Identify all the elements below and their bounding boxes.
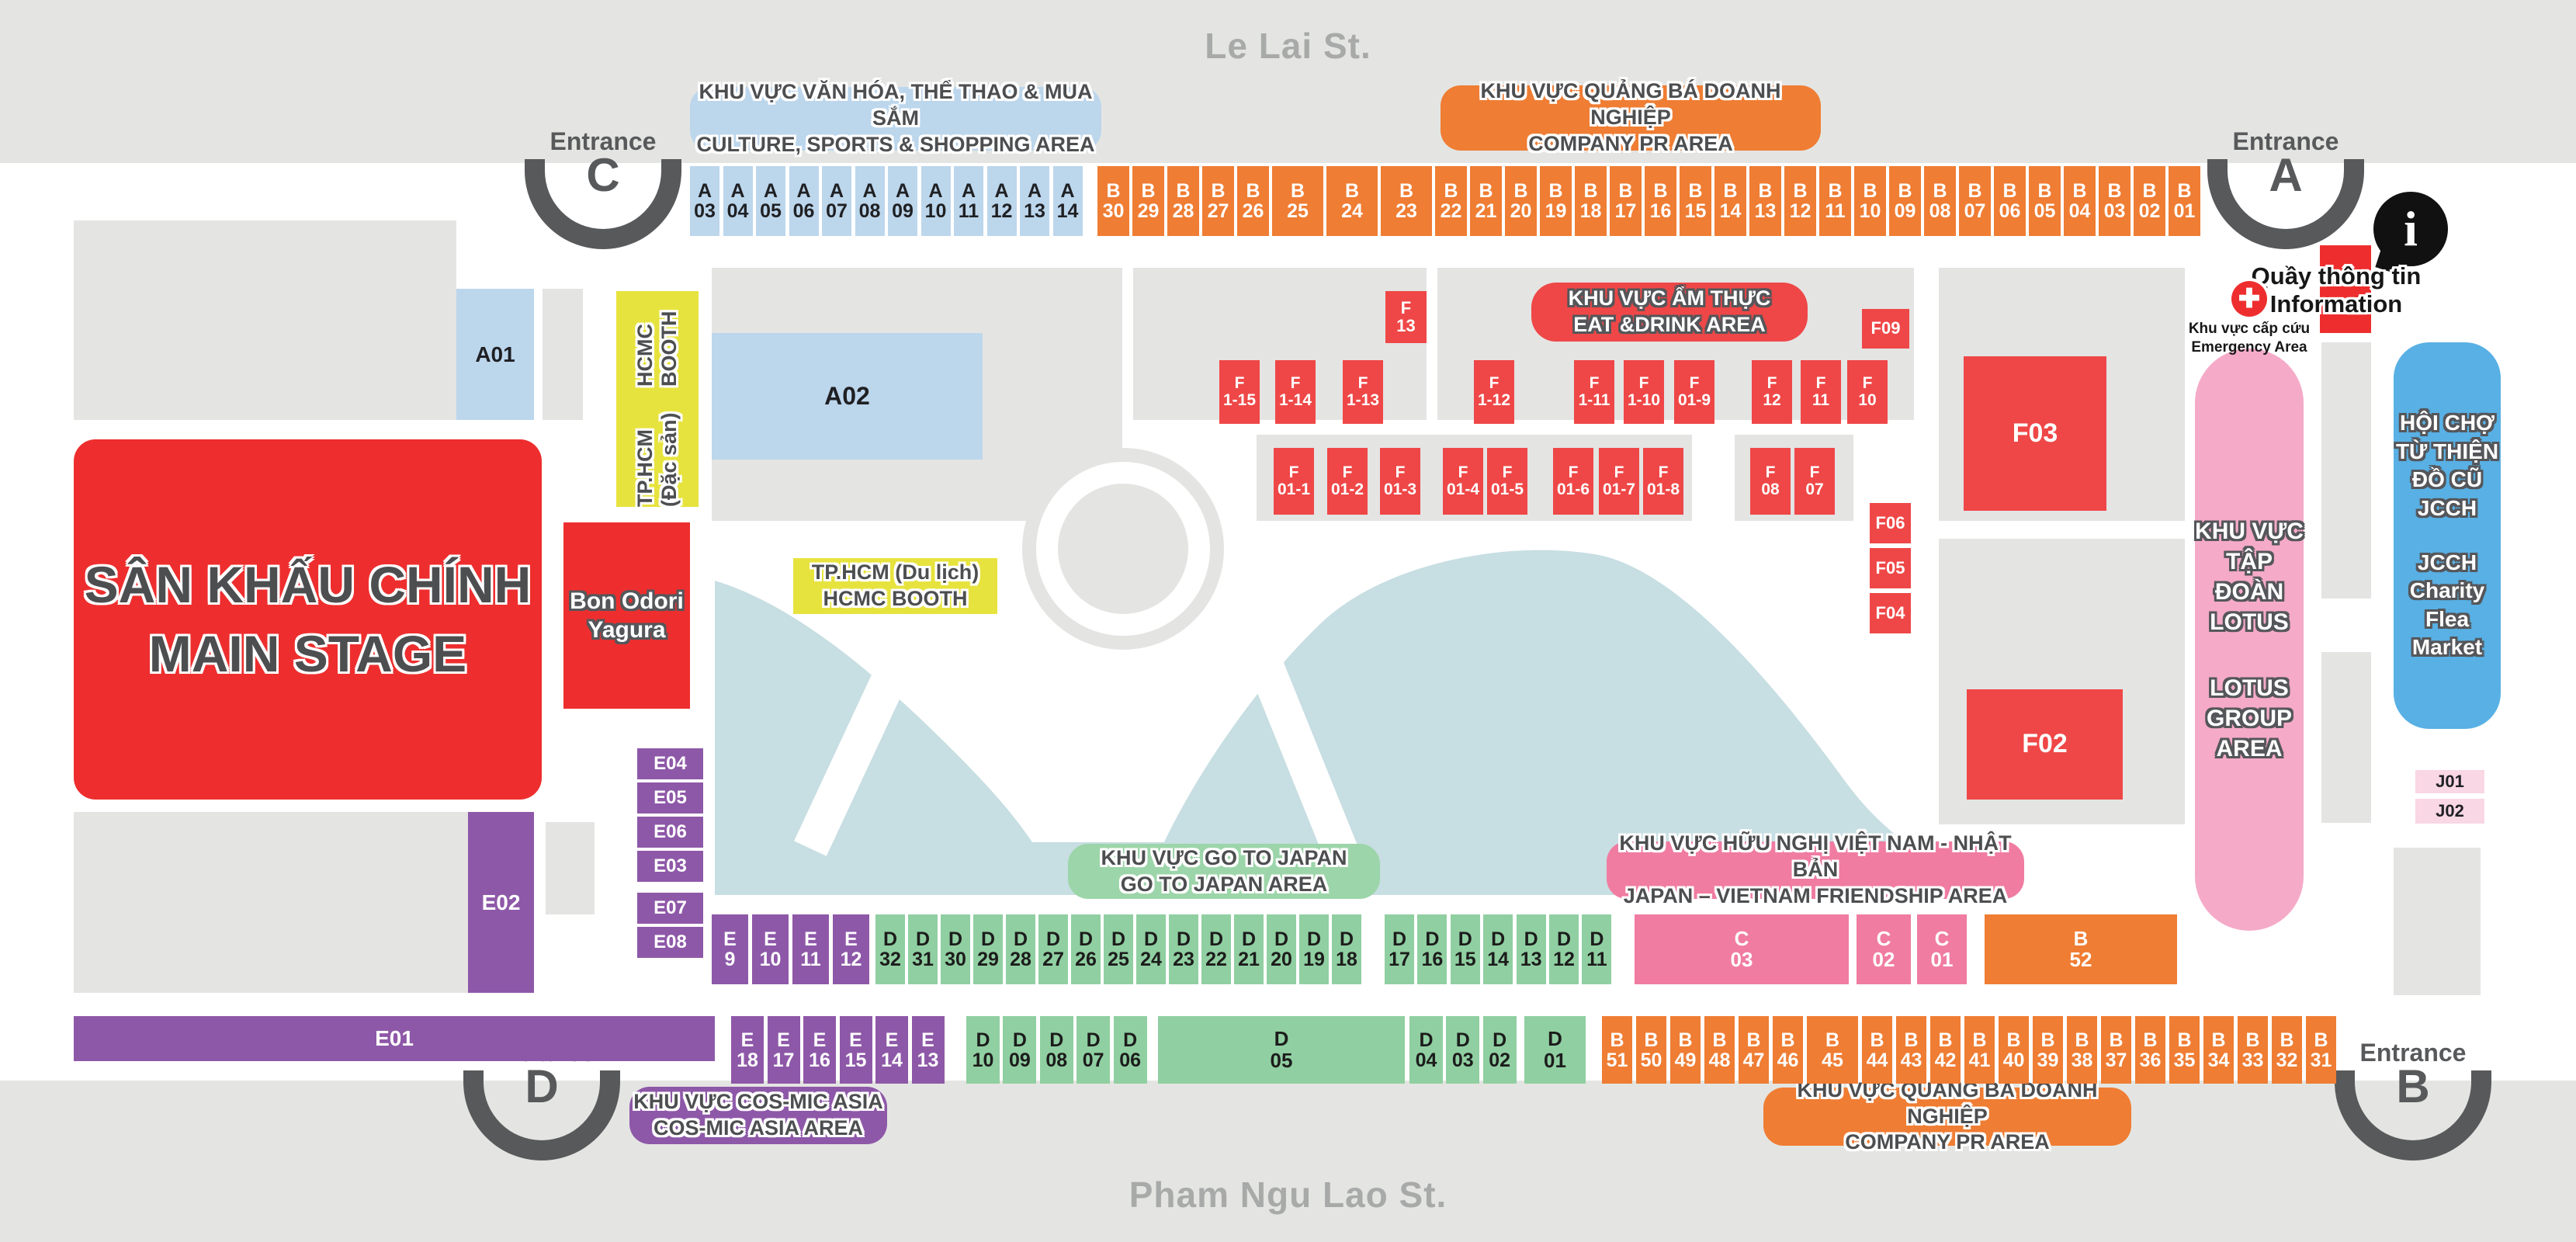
festival-map: Le Lai St. Pham Ngu Lao St. Entrance C E…: [0, 0, 2576, 1242]
booth-d-09: D09: [1003, 1016, 1036, 1084]
booth-f03-label: F03: [2013, 420, 2058, 447]
booth-d-18: D18: [1332, 914, 1361, 984]
booth-a-10: A10: [921, 166, 951, 236]
booth-j02-label: J02: [2436, 803, 2464, 820]
booth-b-11: B11: [1819, 166, 1851, 236]
bon-odori-l1: Bon Odori: [570, 587, 684, 616]
main-stage: SÂN KHẤU CHÍNH MAIN STAGE: [74, 439, 542, 800]
booth-d-17: D17: [1385, 914, 1414, 984]
booth-b-03: B03: [2099, 166, 2130, 236]
booth-b-12: B12: [1784, 166, 1816, 236]
booth-f05-label: F05: [1876, 560, 1905, 578]
label-eat-drink-area: KHU VỰC ẨM THỰC EAT &DRINK AREA: [1531, 283, 1808, 342]
booth-d-23: D23: [1169, 914, 1198, 984]
booth-f02-label: F02: [2022, 730, 2068, 758]
booth-f-11: F11: [1801, 360, 1841, 424]
booth-b-10: B10: [1854, 166, 1886, 236]
booth-e-18: E18: [731, 1016, 764, 1084]
information-icon: i: [2373, 192, 2448, 266]
booth-f-1-15: F1-15: [1219, 360, 1260, 424]
booth-d05: D 05: [1158, 1016, 1405, 1084]
label-pr-area-bottom: KHU VỰC QUẢNG BÁ DOANH NGHIỆP COMPANY PR…: [1763, 1088, 2131, 1146]
booth-d-04: D04: [1409, 1016, 1443, 1084]
booth-d-02: D02: [1483, 1016, 1517, 1084]
booth-b-16: B16: [1645, 166, 1676, 236]
booth-f-10: F10: [1847, 360, 1888, 424]
booth-f04-label: F04: [1876, 605, 1905, 623]
hcmc-dacsan-l1: TP.HCM (Đặc sản): [633, 390, 681, 507]
booth-f-01-6: F01-6: [1553, 448, 1593, 515]
hcmc-dulich-l2: HCMC BOOTH: [823, 586, 968, 612]
booth-f09-label: F09: [1871, 320, 1901, 338]
booth-f-01-3: F01-3: [1380, 448, 1420, 515]
booth-e-11: E11: [792, 914, 829, 984]
booth-b-01: B01: [2169, 166, 2200, 236]
booth-d-11: D11: [1582, 914, 1611, 984]
booth-d-19: D19: [1299, 914, 1329, 984]
jcch-l7: Flea: [2425, 605, 2469, 633]
booth-b-29: B29: [1132, 166, 1164, 236]
booth-d-22: D22: [1201, 914, 1231, 984]
booth-a-13: A13: [1020, 166, 1049, 236]
booth-f-1-10: F1-10: [1624, 360, 1664, 424]
booth-d-32: D32: [875, 914, 905, 984]
booth-f05: F05: [1870, 548, 1911, 588]
booth-b-17: B17: [1610, 166, 1642, 236]
booth-e06: E06: [637, 817, 703, 848]
lotus-l6: AREA: [2216, 734, 2282, 764]
booth-f-08: F08: [1750, 448, 1791, 515]
booth-b52-number: 52: [2070, 949, 2092, 970]
booth-b52: B 52: [1985, 914, 2177, 984]
booth-j01-label: J01: [2436, 773, 2464, 791]
booth-e03: E03: [637, 851, 703, 882]
booth-d-15: D15: [1451, 914, 1480, 984]
booth-f-01-1: F01-1: [1274, 448, 1314, 515]
booth-b-23: B23: [1381, 166, 1432, 236]
booth-e-14: E14: [875, 1016, 908, 1084]
label-culture-l1: KHU VỰC VĂN HÓA, THỂ THAO & MUA SẮM: [690, 79, 1101, 132]
booth-f-01-8: F01-8: [1643, 448, 1683, 515]
booth-d-28: D28: [1006, 914, 1035, 984]
booth-b-34: B34: [2203, 1016, 2234, 1084]
booth-b-50: B50: [1636, 1016, 1666, 1084]
booth-d05-number: 05: [1271, 1050, 1293, 1071]
bon-odori-l2: Yagura: [588, 616, 665, 645]
lotus-group-area: KHU VỰC TẬP ĐOÀN LOTUS LOTUS GROUP AREA: [2195, 349, 2304, 931]
roundabout-center: [1058, 484, 1188, 614]
label-friendship-l1: KHU VỰC HỮU NGHỊ VIỆT NAM - NHẬT BẢN: [1607, 831, 2024, 883]
booth-b-39: B39: [2033, 1016, 2063, 1084]
booth-b-13: B13: [1749, 166, 1781, 236]
booth-d-07: D07: [1077, 1016, 1110, 1084]
entrance-c-letter: C: [545, 148, 661, 202]
label-pr-top-l1: KHU VỰC QUẢNG BÁ DOANH NGHIỆP: [1441, 78, 1821, 131]
booth-b-30: B30: [1097, 166, 1129, 236]
booth-a01: A01: [456, 289, 534, 420]
booth-j01: J01: [2415, 770, 2484, 793]
booth-e-16: E16: [803, 1016, 836, 1084]
booth-b-06: B06: [1994, 166, 2026, 236]
booth-b-05: B05: [2029, 166, 2061, 236]
booth-d-24: D24: [1136, 914, 1166, 984]
booth-d-03: D03: [1446, 1016, 1479, 1084]
booth-e02: E02: [468, 812, 534, 993]
booth-c01: C 01: [1917, 914, 1967, 984]
booth-b-45: B45: [1807, 1016, 1858, 1084]
booth-f-01-5: F01-5: [1487, 448, 1527, 515]
hcmc-booth-dacsan: TP.HCM (Đặc sản) HCMC BOOTH: [616, 291, 699, 507]
booth-f02: F02: [1967, 689, 2123, 800]
booth-e-17: E17: [768, 1016, 800, 1084]
label-friendship-area: KHU VỰC HỮU NGHỊ VIỆT NAM - NHẬT BẢN JAP…: [1607, 841, 2024, 899]
label-cosmic-l1: KHU VỰC COS-MIC ASIA: [633, 1089, 882, 1115]
booth-a-14: A14: [1053, 166, 1083, 236]
booth-b-35: B35: [2169, 1016, 2200, 1084]
booth-c03-number: 03: [1731, 949, 1753, 970]
booth-b-28: B28: [1167, 166, 1199, 236]
booth-d-06: D06: [1114, 1016, 1147, 1084]
lotus-l3: LOTUS: [2210, 607, 2289, 637]
booth-c03: C 03: [1635, 914, 1849, 984]
booth-b-02: B02: [2134, 166, 2165, 236]
jcch-l5: JCCH: [2418, 549, 2477, 577]
booth-e05: E05: [637, 782, 703, 814]
booth-f06: F06: [1870, 503, 1911, 543]
booth-b-38: B38: [2067, 1016, 2097, 1084]
booth-b-40: B40: [1999, 1016, 2029, 1084]
booth-b-26: B26: [1237, 166, 1269, 236]
booth-f-1-14: F1-14: [1275, 360, 1316, 424]
booth-f13-letter: F: [1401, 300, 1411, 317]
entrance-c: Entrance C: [502, 127, 704, 249]
booth-e-15: E15: [840, 1016, 872, 1084]
booth-e-10: E10: [752, 914, 789, 984]
booth-a-04: A04: [723, 166, 753, 236]
booth-c02: C 02: [1857, 914, 1911, 984]
emergency-l1: Khu vực cấp cứu: [2172, 320, 2327, 338]
jcch-l1: HỘI CHỢ: [2400, 409, 2495, 437]
booth-a-08: A08: [855, 166, 885, 236]
booth-d05-letter: D: [1274, 1029, 1289, 1049]
booth-e08: E08: [637, 927, 703, 958]
booth-d01-number: 01: [1544, 1050, 1566, 1071]
booth-f04: F04: [1870, 593, 1911, 633]
label-culture-l2: CULTURE, SPORTS & SHOPPING AREA: [696, 132, 1094, 158]
booth-b52-letter: B: [2074, 928, 2089, 949]
booth-d-10: D10: [966, 1016, 1000, 1084]
booth-d-20: D20: [1267, 914, 1296, 984]
booth-a-05: A05: [756, 166, 785, 236]
booth-b-47: B47: [1739, 1016, 1769, 1084]
entrance-b: Entrance B: [2312, 1039, 2514, 1160]
booth-c02-number: 02: [1873, 949, 1895, 970]
booth-b-27: B27: [1202, 166, 1234, 236]
booth-e04: E04: [637, 748, 703, 779]
entrance-a-arc: A: [2207, 159, 2364, 249]
label-go-to-japan-area: KHU VỰC GO TO JAPAN GO TO JAPAN AREA: [1068, 844, 1380, 899]
booth-a02: A02: [712, 333, 983, 460]
booth-d-16: D16: [1417, 914, 1447, 984]
booth-a02-label: A02: [824, 383, 870, 409]
booth-b-04: B04: [2064, 166, 2096, 236]
entrance-c-arc: C: [525, 159, 681, 249]
booth-c01-letter: C: [1935, 928, 1950, 949]
booth-f09: F09: [1862, 309, 1909, 349]
booth-b-42: B42: [1930, 1016, 1961, 1084]
booth-f13-number: 13: [1396, 317, 1415, 335]
booth-a-03: A03: [690, 166, 719, 236]
booth-c03-letter: C: [1735, 928, 1749, 949]
lotus-l1: KHU VỰC: [2195, 516, 2304, 546]
booth-f13: F 13: [1385, 291, 1427, 343]
booth-f-01-9: F01-9: [1674, 360, 1714, 424]
booth-e-13: E13: [912, 1016, 945, 1084]
booth-d-25: D25: [1104, 914, 1133, 984]
label-pr-top-l2: COMPANY PR AREA: [1528, 131, 1733, 158]
booth-b-43: B43: [1896, 1016, 1926, 1084]
booth-b-46: B46: [1773, 1016, 1803, 1084]
booth-e-12: E12: [833, 914, 869, 984]
booth-d-30: D30: [941, 914, 970, 984]
label-culture-area: KHU VỰC VĂN HÓA, THỂ THAO & MUA SẮM CULT…: [690, 87, 1101, 151]
booth-e02-label: E02: [482, 891, 521, 914]
booth-f-07: F07: [1794, 448, 1835, 515]
booth-b-37: B37: [2101, 1016, 2131, 1084]
label-pr-bottom-l1: KHU VỰC QUẢNG BÁ DOANH NGHIỆP: [1763, 1077, 2131, 1130]
booth-e-9: E9: [712, 914, 748, 984]
booth-b-41: B41: [1964, 1016, 1995, 1084]
booth-f06-label: F06: [1876, 515, 1905, 533]
booth-f-01-7: F01-7: [1599, 448, 1639, 515]
booth-b-32: B32: [2272, 1016, 2302, 1084]
booth-d-13: D13: [1517, 914, 1546, 984]
jcch-l2: TỪ THIỆN: [2396, 438, 2498, 466]
emergency-l2: Emergency Area: [2172, 338, 2327, 357]
booth-b-33: B33: [2238, 1016, 2268, 1084]
label-pr-area-top: KHU VỰC QUẢNG BÁ DOANH NGHIỆP COMPANY PR…: [1441, 85, 1821, 151]
entrance-a: Entrance A: [2185, 127, 2387, 249]
booth-d-27: D27: [1038, 914, 1068, 984]
main-stage-l2: MAIN STAGE: [149, 619, 466, 689]
booth-b-20: B20: [1505, 166, 1537, 236]
booth-b-15: B15: [1680, 166, 1711, 236]
label-pr-bottom-l2: COMPANY PR AREA: [1845, 1129, 2050, 1156]
label-gojapan-l1: KHU VỰC GO TO JAPAN: [1101, 845, 1347, 872]
booth-b-18: B18: [1575, 166, 1607, 236]
bon-odori-yagura: Bon Odori Yagura: [563, 522, 690, 709]
booth-f-1-12: F1-12: [1474, 360, 1514, 424]
booth-d-21: D21: [1234, 914, 1264, 984]
booth-e07: E07: [637, 893, 703, 924]
booth-a-07: A07: [822, 166, 851, 236]
entrance-d-arc: D: [463, 1070, 620, 1160]
booth-b-24: B24: [1326, 166, 1378, 236]
booth-a-09: A09: [888, 166, 917, 236]
hcmc-dulich-l1: TP.HCM (Du lịch): [812, 560, 979, 586]
label-cosmic-l2: COS-MIC ASIA AREA: [654, 1115, 863, 1142]
emergency-label: Khu vực cấp cứu Emergency Area: [2172, 320, 2327, 357]
main-stage-l1: SÂN KHẤU CHÍNH: [85, 550, 532, 619]
booth-d01: D 01: [1524, 1016, 1586, 1084]
booth-b-21: B21: [1470, 166, 1502, 236]
booth-f-1-11: F1-11: [1574, 360, 1614, 424]
booth-b-44: B44: [1862, 1016, 1892, 1084]
label-cosmic-asia-area: KHU VỰC COS-MIC ASIA COS-MIC ASIA AREA: [629, 1087, 887, 1144]
booth-a-12: A12: [987, 166, 1017, 236]
jcch-l4: JCCH: [2418, 494, 2477, 522]
booth-f-01-4: F01-4: [1443, 448, 1483, 515]
label-gojapan-l2: GO TO JAPAN AREA: [1121, 872, 1328, 898]
booth-f-12: F12: [1752, 360, 1792, 424]
booth-b-09: B09: [1889, 166, 1921, 236]
jcch-l6: Charity: [2410, 577, 2484, 605]
hcmc-booth-dulich: TP.HCM (Du lịch) HCMC BOOTH: [793, 558, 997, 614]
booth-c02-letter: C: [1877, 928, 1891, 949]
booth-f-01-2: F01-2: [1327, 448, 1368, 515]
booth-b-48: B48: [1704, 1016, 1735, 1084]
booth-c01-number: 01: [1931, 949, 1954, 970]
booth-e01: E01: [74, 1016, 715, 1061]
lotus-l2: TẬP ĐOÀN: [2195, 546, 2304, 607]
label-eat-l2: EAT &DRINK AREA: [1573, 312, 1766, 338]
lotus-l5: GROUP: [2207, 703, 2292, 734]
booth-d-14: D14: [1483, 914, 1513, 984]
hcmc-dacsan-l2: HCMC BOOTH: [633, 291, 681, 387]
booth-d-26: D26: [1071, 914, 1101, 984]
booth-d-08: D08: [1040, 1016, 1073, 1084]
entrance-a-letter: A: [2228, 148, 2344, 202]
booth-j02: J02: [2415, 799, 2484, 824]
booth-d-31: D31: [908, 914, 938, 984]
label-eat-l1: KHU VỰC ẨM THỰC: [1569, 286, 1771, 312]
jcch-flea-market: HỘI CHỢ TỪ THIỆN ĐỒ CŨ JCCH JCCH Charity…: [2394, 342, 2501, 729]
booth-b-14: B14: [1714, 166, 1746, 236]
entrance-b-letter: B: [2355, 1060, 2471, 1113]
booth-d01-letter: D: [1548, 1029, 1562, 1049]
booth-b-51: B51: [1602, 1016, 1632, 1084]
booth-e01-label: E01: [375, 1027, 414, 1049]
booth-f-1-13: F1-13: [1343, 360, 1383, 424]
booth-b-36: B36: [2135, 1016, 2165, 1084]
booth-a-06: A06: [789, 166, 819, 236]
booth-d-29: D29: [973, 914, 1003, 984]
booth-a01-label: A01: [475, 343, 515, 366]
booth-b-07: B07: [1959, 166, 1991, 236]
booth-b-49: B49: [1670, 1016, 1701, 1084]
booth-b-22: B22: [1435, 166, 1467, 236]
booth-b-31: B31: [2306, 1016, 2336, 1084]
jcch-l8: Market: [2412, 633, 2482, 661]
booth-a-11: A11: [954, 166, 983, 236]
jcch-l3: ĐỒ CŨ: [2412, 466, 2482, 494]
label-friendship-l2: JAPAN – VIETNAM FRIENDSHIP AREA: [1624, 883, 2008, 910]
booth-d-12: D12: [1549, 914, 1579, 984]
emergency-cross-icon: ✚: [2231, 281, 2267, 317]
booth-b-08: B08: [1924, 166, 1956, 236]
booth-f03: F03: [1964, 356, 2106, 511]
entrance-b-arc: B: [2335, 1070, 2491, 1160]
entrance-d-letter: D: [484, 1060, 600, 1113]
booth-b-19: B19: [1540, 166, 1572, 236]
lotus-l4: LOTUS: [2210, 673, 2289, 703]
booth-b-25: B25: [1272, 166, 1323, 236]
